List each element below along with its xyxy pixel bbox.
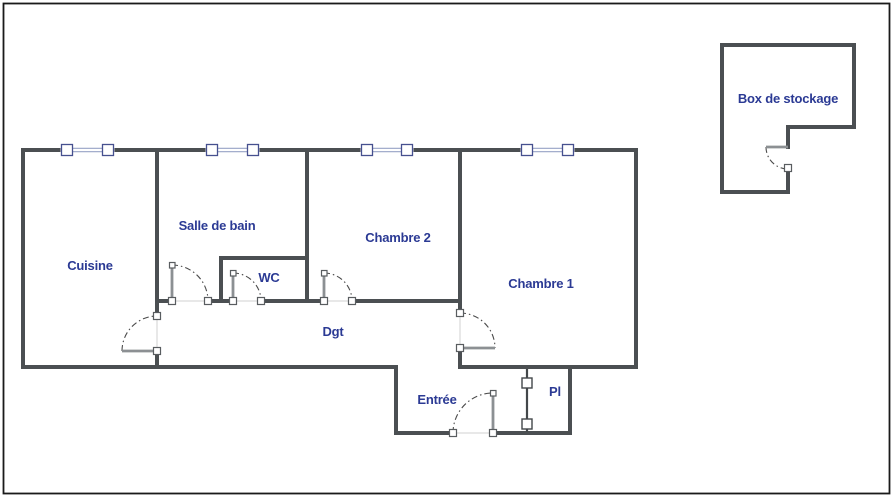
jamb-square [490, 430, 497, 437]
door-arc-cuisine [122, 316, 157, 351]
window-square [402, 145, 413, 156]
jamb-square [457, 345, 464, 352]
window-square [62, 145, 73, 156]
room-label-chambre1: Chambre 1 [508, 276, 573, 291]
jamb-square [205, 298, 212, 305]
jamb-square [321, 298, 328, 305]
room-label-pl: Pl [549, 384, 561, 399]
window-square [563, 145, 574, 156]
pl-door-square [522, 419, 532, 429]
door-arc-entree [453, 393, 493, 433]
door-arc-chambre2 [324, 273, 352, 301]
jamb-square [258, 298, 265, 305]
jamb-square [349, 298, 356, 305]
floorplan-svg: Cuisine Salle de bain WC Chambre 2 Chamb… [0, 0, 895, 502]
plan-border [4, 4, 890, 494]
room-label-entree: Entrée [417, 392, 456, 407]
door-arc-chambre1 [460, 313, 495, 348]
pl-door-symbol [522, 369, 532, 432]
window-square [207, 145, 218, 156]
jamb-square [457, 310, 464, 317]
room-label-wc: WC [258, 270, 280, 285]
door-arc-wc [233, 273, 261, 301]
floorplan-canvas: Cuisine Salle de bain WC Chambre 2 Chamb… [0, 0, 895, 502]
leaf-end-square [170, 263, 176, 269]
room-label-salle-de-bain: Salle de bain [179, 218, 256, 233]
window-square [362, 145, 373, 156]
jamb-square [230, 298, 237, 305]
jamb-square [154, 348, 161, 355]
leaf-end-square [491, 391, 497, 397]
pl-door-square [522, 378, 532, 388]
room-label-box-de-stockage: Box de stockage [738, 91, 838, 106]
leaf-end-square [322, 271, 328, 277]
leaf-end-square [231, 271, 237, 277]
window-square [248, 145, 259, 156]
room-label-chambre2: Chambre 2 [365, 230, 430, 245]
door-arc-sdb [172, 265, 208, 301]
room-label-dgt: Dgt [322, 324, 344, 339]
room-label-cuisine: Cuisine [67, 258, 113, 273]
jamb-square [450, 430, 457, 437]
jamb-square [169, 298, 176, 305]
jamb-square [154, 313, 161, 320]
window-square [522, 145, 533, 156]
window-square [103, 145, 114, 156]
jamb-square [785, 165, 792, 172]
walls [23, 45, 854, 433]
